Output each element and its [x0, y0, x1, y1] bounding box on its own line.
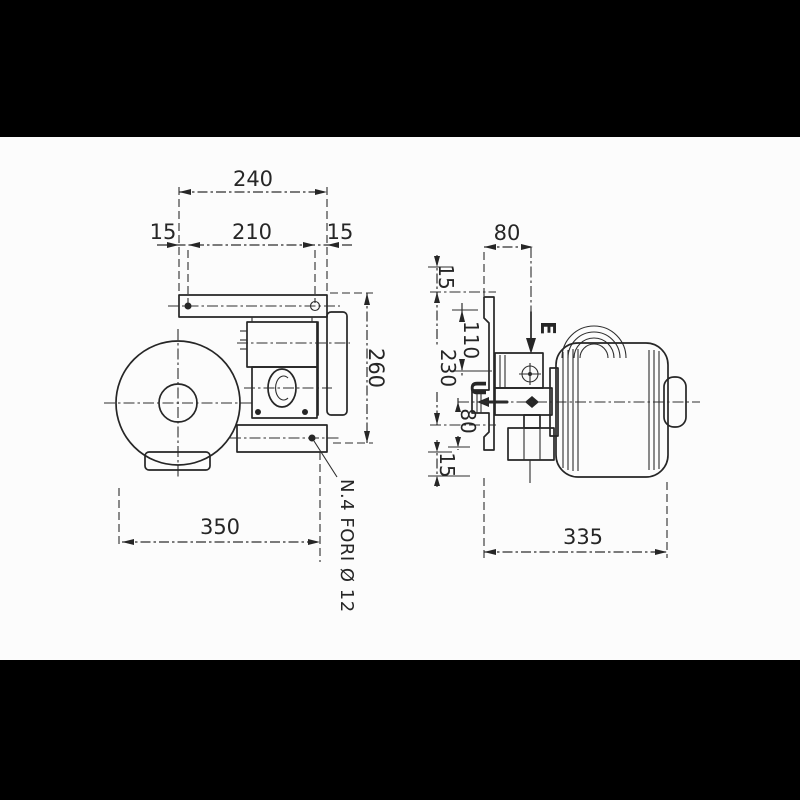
bolt-right — [302, 409, 308, 415]
mounting-plate-bottom-bar — [230, 425, 340, 452]
technical-drawing: 240 15 210 15 — [0, 137, 800, 660]
dim-230-label: 230 — [436, 349, 460, 387]
holes-note-label: N.4 FORI Ø 12 — [336, 479, 357, 613]
bolt-left — [255, 409, 261, 415]
dim-15-top-label: 15 — [434, 264, 458, 289]
dim-overall-length: 335 — [484, 478, 667, 558]
plate-hole-top-left — [185, 303, 192, 310]
motor-front-circle — [104, 329, 252, 477]
letterbox-top — [0, 0, 800, 137]
dim-335-label: 335 — [563, 525, 603, 549]
screenshot-stage: 240 15 210 15 — [0, 0, 800, 800]
dim-15-bottom-label: 15 — [435, 452, 459, 477]
drawing-paper: 240 15 210 15 — [0, 137, 800, 660]
pump-body-front — [237, 317, 350, 418]
mounting-plate-top-bar — [168, 295, 340, 317]
dim-plate-height: 260 — [330, 293, 388, 443]
inlet-port-block — [495, 353, 543, 388]
dim-hole-spacing-horizontal: 15 210 15 — [150, 220, 354, 303]
inlet-flow-arrow — [526, 338, 536, 354]
inlet-marker: E — [526, 247, 560, 354]
pump-flange-front — [318, 312, 347, 415]
drain-neck — [524, 415, 540, 428]
side-dim-chain: 15 110 230 80 — [428, 255, 496, 488]
dim-inlet-offset: 80 — [484, 221, 533, 296]
dim-15-left-label: 15 — [150, 220, 177, 244]
dim-15-right-label: 15 — [327, 220, 354, 244]
dim-240-label: 240 — [233, 167, 273, 191]
front-view: 240 15 210 15 — [104, 167, 388, 613]
dim-80-lower-label: 80 — [456, 408, 480, 433]
dim-80-top-label: 80 — [494, 221, 521, 245]
hex-plug — [508, 428, 554, 460]
dim-overall-width: 350 — [119, 452, 320, 562]
dim-210-label: 210 — [232, 220, 272, 244]
inlet-label: E — [536, 321, 560, 335]
dim-260-label: 260 — [364, 348, 388, 388]
pump-side — [495, 353, 554, 483]
letterbox-bottom — [0, 660, 800, 800]
dim-110-label: 110 — [459, 321, 483, 359]
side-view: 80 E — [428, 221, 700, 558]
dim-350-label: 350 — [200, 515, 240, 539]
plate-hole-bottom-right — [309, 435, 316, 442]
outlet-label: U — [466, 380, 490, 396]
